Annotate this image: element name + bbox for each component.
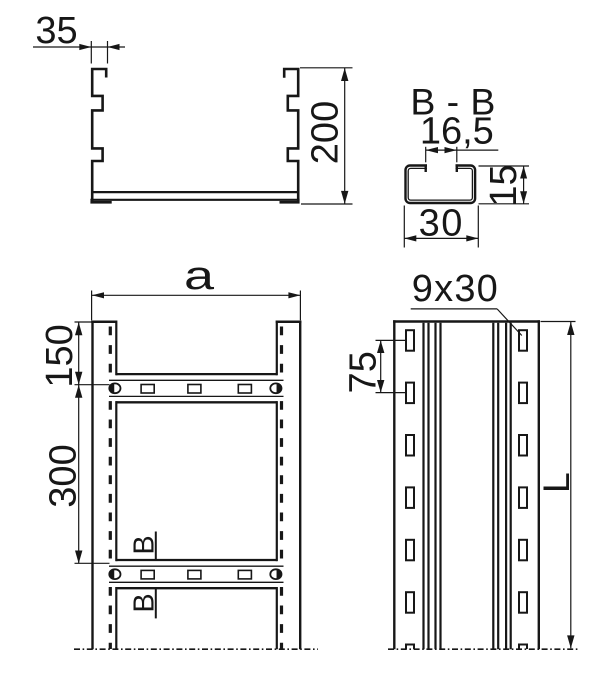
- svg-text:150: 150: [39, 324, 81, 387]
- svg-text:a: a: [184, 254, 215, 299]
- svg-text:L: L: [535, 472, 577, 493]
- svg-text:300: 300: [43, 444, 85, 507]
- svg-text:9x30: 9x30: [412, 268, 499, 310]
- svg-text:16,5: 16,5: [420, 110, 494, 152]
- svg-text:30: 30: [419, 203, 464, 245]
- svg-text:B: B: [129, 535, 161, 554]
- svg-text:200: 200: [305, 101, 347, 164]
- svg-text:35: 35: [35, 10, 77, 52]
- svg-text:15: 15: [483, 164, 525, 206]
- svg-text:B: B: [129, 593, 161, 612]
- svg-text:75: 75: [342, 351, 384, 393]
